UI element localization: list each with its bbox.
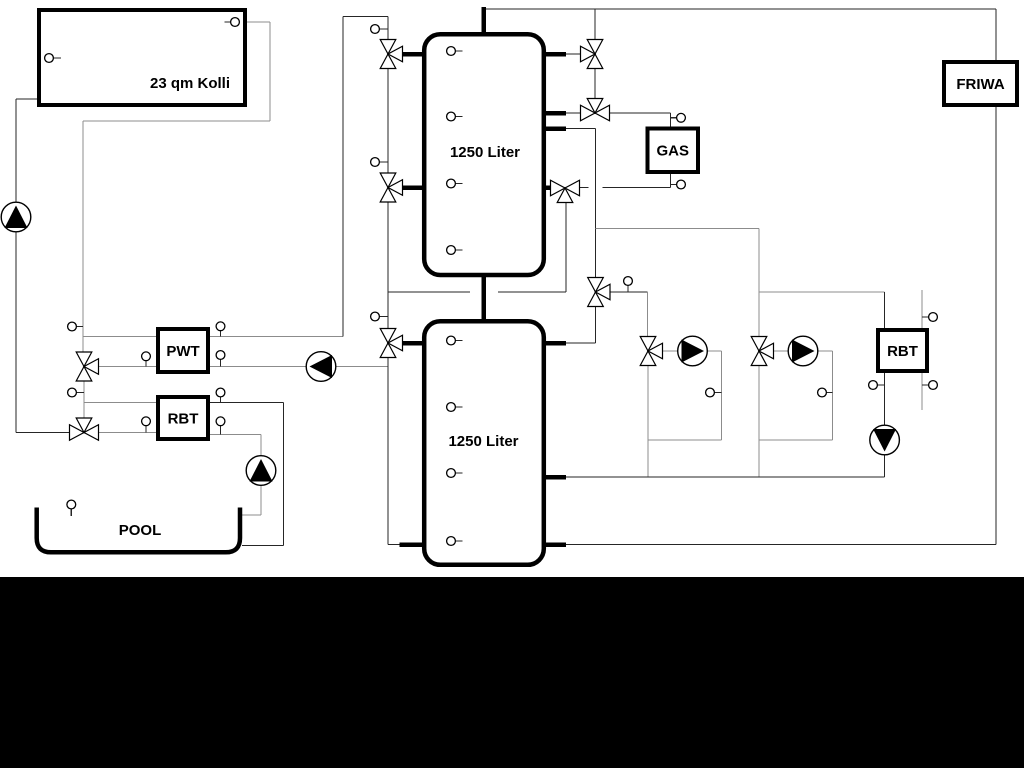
svg-text:RBT: RBT <box>168 410 199 427</box>
svg-text:POOL: POOL <box>119 522 162 539</box>
svg-text:1250 Liter: 1250 Liter <box>448 433 518 450</box>
svg-text:PWT: PWT <box>166 343 199 360</box>
svg-text:1250 Liter: 1250 Liter <box>450 144 520 161</box>
svg-text:FRIWA: FRIWA <box>956 76 1004 93</box>
svg-text:RBT: RBT <box>887 343 918 360</box>
svg-text:23 qm Kolli: 23 qm Kolli <box>150 75 230 92</box>
svg-text:GAS: GAS <box>656 143 689 160</box>
